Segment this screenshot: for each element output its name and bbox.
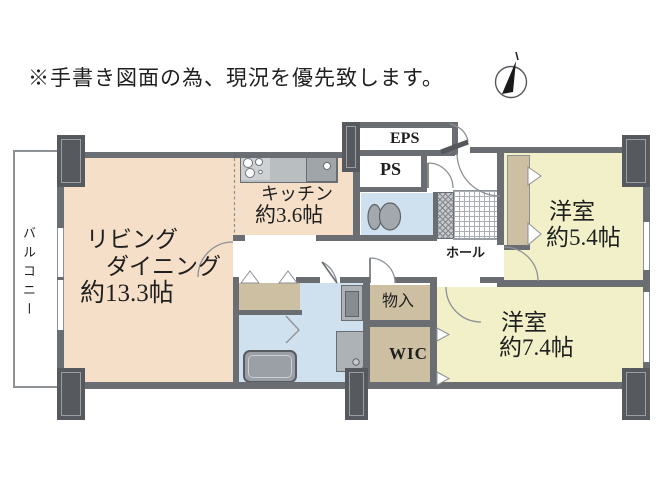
pillar (57, 135, 85, 187)
storage-label: 物入 (382, 294, 414, 310)
floorplan-canvas: ※手書き図面の為、現況を優先致します。 (0, 0, 670, 500)
bedroom74-label: 洋室 (501, 311, 547, 334)
wall-segment (296, 277, 320, 283)
wall-segment (57, 152, 360, 158)
wall-segment (233, 235, 245, 241)
wall-segment (233, 277, 239, 389)
entrance-step-line (453, 238, 497, 240)
bedroom54-size-label: 約5.4帖 (546, 226, 621, 249)
living-size-label: 約13.3帖 (80, 281, 174, 306)
wall-segment (356, 150, 455, 156)
bathtub (243, 350, 297, 383)
wall-segment (497, 147, 504, 245)
pillar (345, 368, 368, 420)
north-compass-icon (496, 52, 527, 98)
vanity-unit (341, 285, 363, 321)
window-mullion (57, 277, 64, 280)
disclaimer-text: ※手書き図面の為、現況を優先致します。 (28, 68, 444, 89)
closet-living (239, 283, 300, 310)
wall-segment (643, 270, 650, 292)
living-label-1: リビング (86, 228, 178, 251)
wic-label: WIC (389, 345, 428, 362)
balcony-label: バルコニー (22, 226, 35, 321)
ps-label: PS (380, 160, 401, 178)
kitchen-label: キッチン (261, 185, 333, 203)
door-toilet (428, 163, 453, 188)
eps-label: EPS (390, 131, 419, 147)
wall-segment (357, 235, 437, 241)
window-bedroom54 (643, 222, 650, 270)
sink-unit (306, 156, 337, 182)
pillar (622, 368, 650, 420)
entrance-floor (453, 190, 498, 239)
wall-segment (237, 310, 302, 315)
pillar (622, 135, 650, 187)
wall-segment (356, 187, 427, 192)
vanity-mirror (345, 291, 359, 317)
bedroom54-label: 洋室 (549, 200, 595, 223)
wall-segment (497, 280, 650, 287)
pillar (57, 368, 85, 420)
hall-label: ホール (446, 246, 485, 259)
living-label-2: ダイニング (106, 255, 221, 278)
wall-segment (430, 283, 437, 387)
stove-unit (241, 156, 270, 180)
wall-segment (452, 122, 458, 155)
door-storage (370, 258, 395, 283)
door-washroom-arc (322, 262, 337, 283)
washing-machine (336, 331, 365, 372)
balcony-area (13, 150, 59, 388)
closet-bedroom54 (507, 155, 530, 247)
bedroom74-size-label: 約7.4帖 (499, 336, 574, 359)
wall-segment (504, 245, 530, 250)
toilet-room (361, 193, 433, 237)
pillar (342, 122, 360, 172)
kitchen-size-label: 約3.6帖 (255, 205, 323, 226)
shoe-cabinet (437, 192, 454, 239)
wall-segment (367, 320, 433, 327)
wall-segment (433, 192, 437, 238)
window-bedroom74 (643, 292, 650, 362)
leaf-washroom (322, 262, 337, 283)
wall-segment (421, 156, 427, 192)
